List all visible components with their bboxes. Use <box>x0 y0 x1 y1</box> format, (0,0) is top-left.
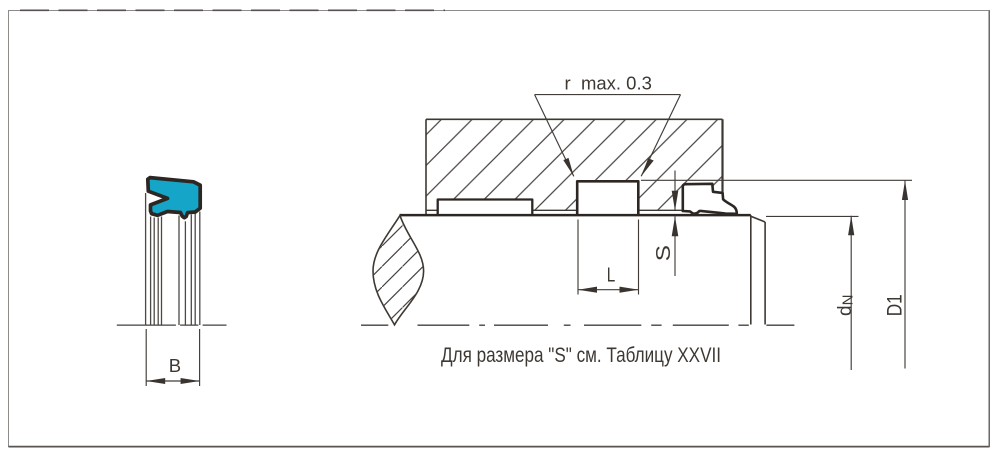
svg-text:Для размера "S" см. Таблицу XX: Для размера "S" см. Таблицу XXVII <box>441 343 721 367</box>
svg-text:S: S <box>653 245 675 261</box>
svg-text:r max. 0.3: r max. 0.3 <box>565 73 652 94</box>
svg-text:L: L <box>607 263 616 286</box>
svg-text:D1: D1 <box>884 294 907 316</box>
svg-text:dN: dN <box>835 295 857 316</box>
svg-text:B: B <box>169 355 181 376</box>
